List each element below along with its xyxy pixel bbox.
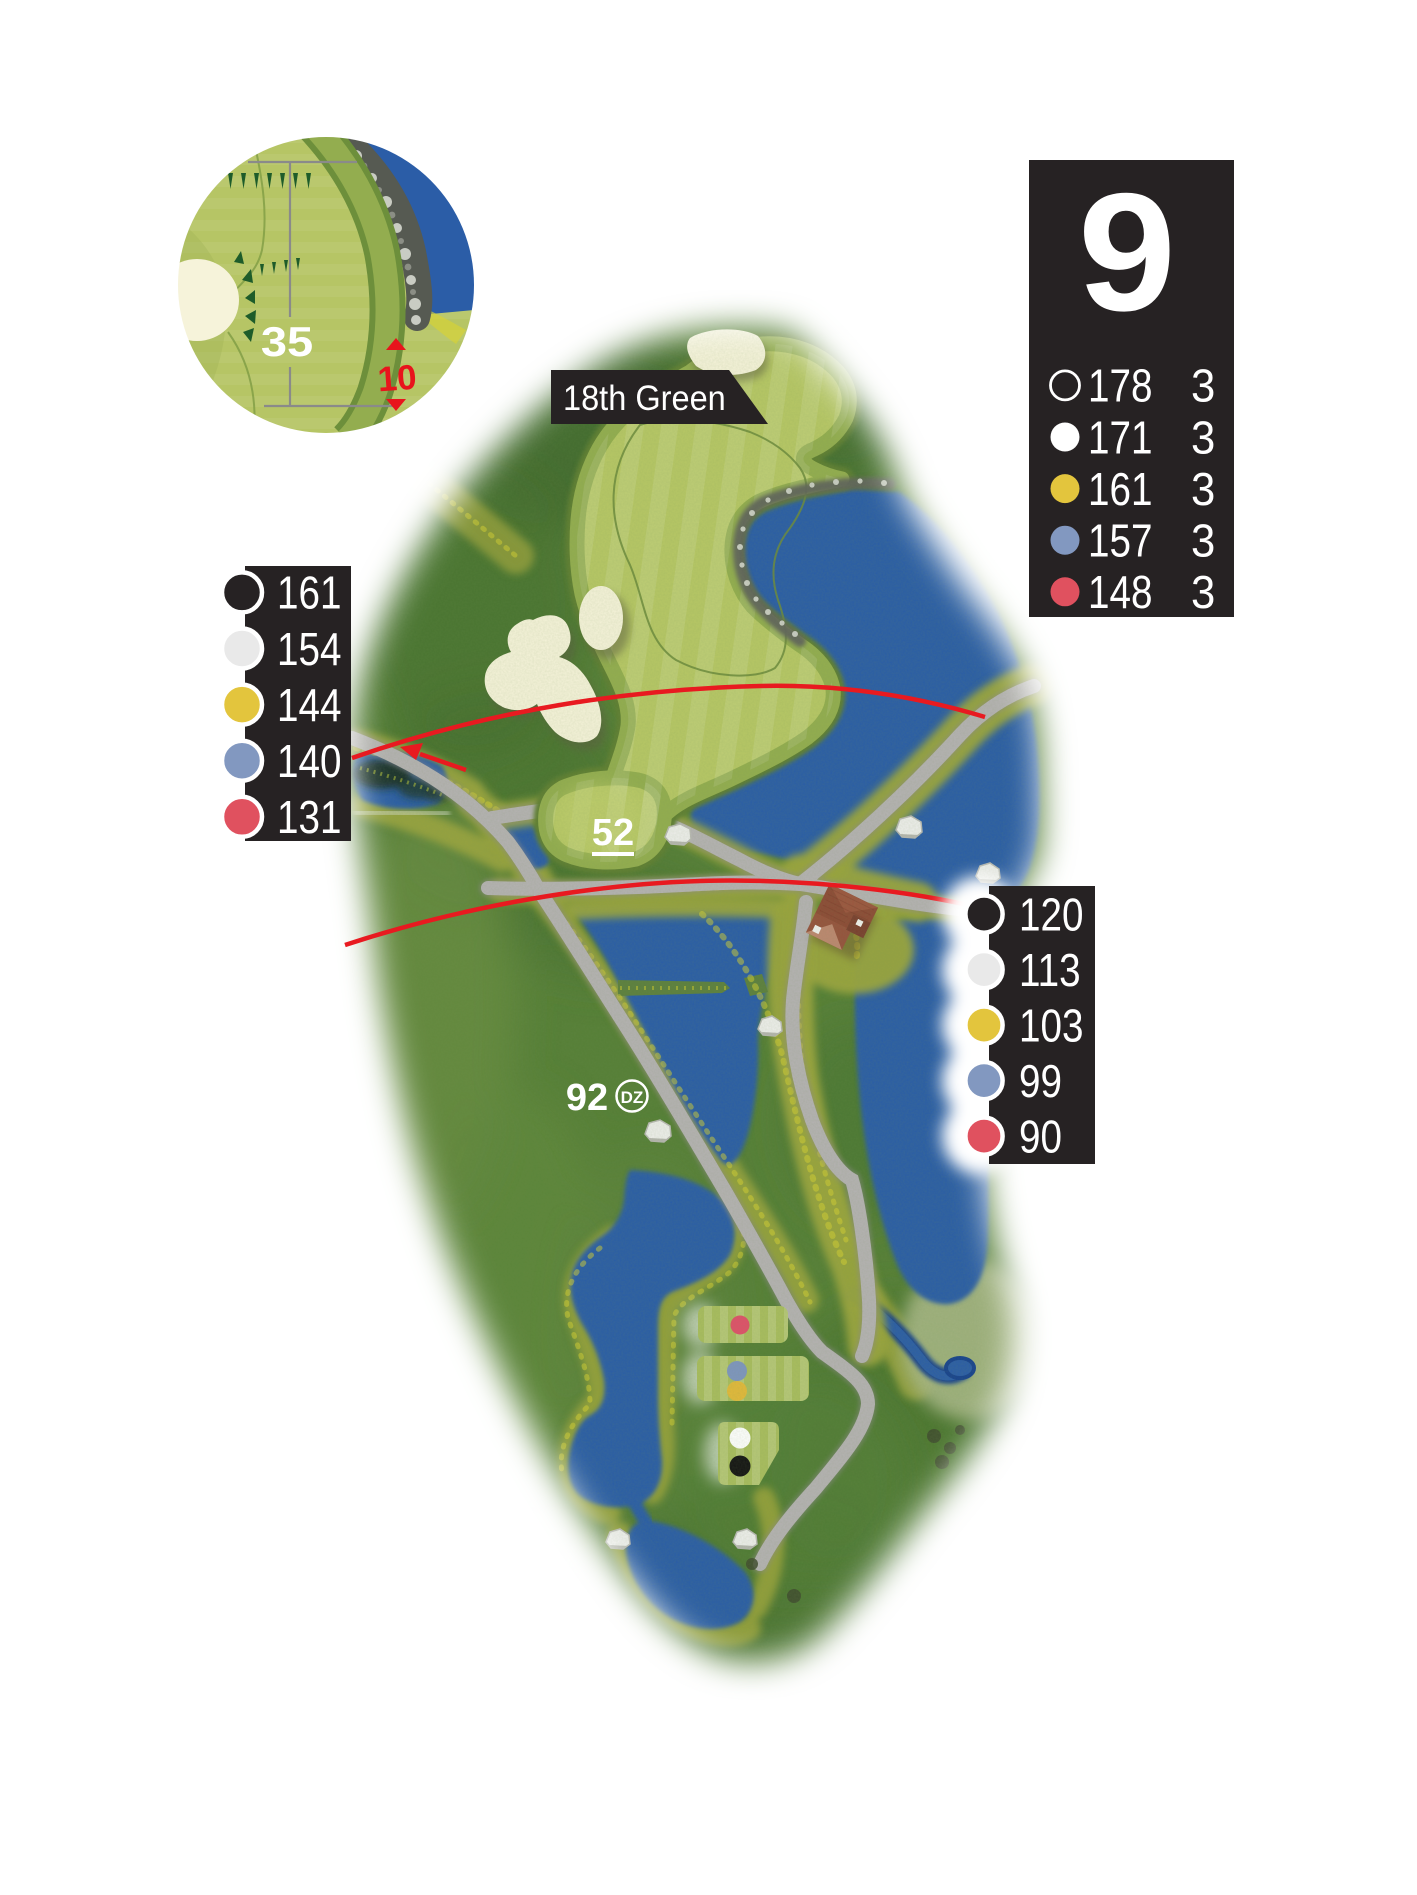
svg-text:148: 148 [1088,567,1152,618]
svg-text:131: 131 [277,792,341,843]
svg-text:144: 144 [277,680,341,731]
svg-text:3: 3 [1191,360,1215,412]
svg-text:161: 161 [1088,464,1152,515]
svg-text:90: 90 [1019,1111,1062,1162]
svg-text:10: 10 [376,358,418,400]
svg-text:157: 157 [1088,515,1152,566]
svg-text:103: 103 [1019,1000,1083,1051]
svg-text:3: 3 [1191,566,1215,618]
svg-text:52: 52 [592,812,634,854]
svg-text:178: 178 [1088,361,1152,412]
svg-text:18th Green: 18th Green [563,379,726,418]
svg-text:35: 35 [261,319,313,365]
svg-text:3: 3 [1191,411,1215,463]
svg-text:DZ: DZ [621,1088,644,1107]
svg-text:120: 120 [1019,889,1083,940]
svg-text:113: 113 [1019,945,1081,996]
svg-text:140: 140 [277,736,341,787]
svg-text:154: 154 [277,624,341,675]
svg-text:3: 3 [1191,514,1215,566]
svg-text:3: 3 [1191,463,1215,515]
svg-text:9: 9 [1078,158,1176,346]
svg-text:171: 171 [1088,412,1152,463]
svg-text:161: 161 [277,568,341,619]
svg-text:99: 99 [1019,1056,1062,1107]
svg-text:92: 92 [566,1077,608,1119]
